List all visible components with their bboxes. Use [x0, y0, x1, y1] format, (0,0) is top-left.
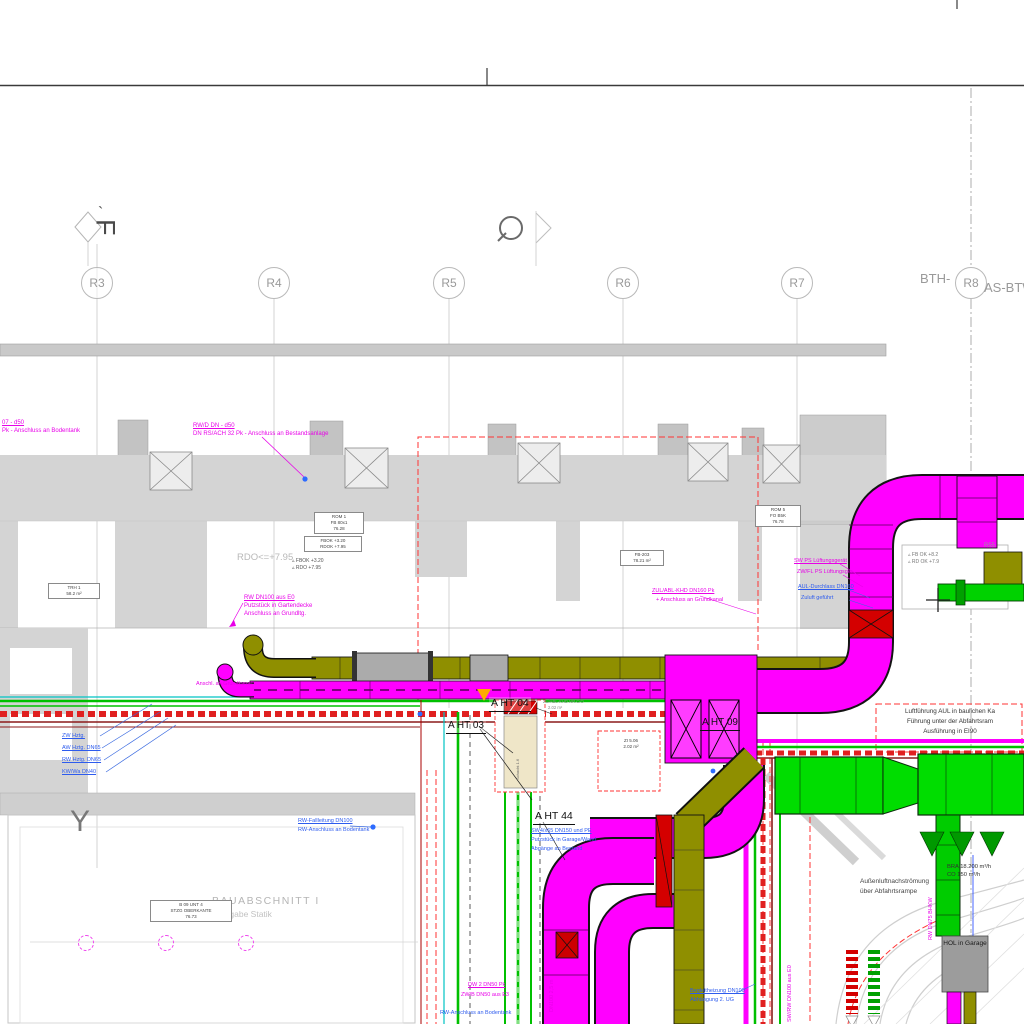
- cad-plan-canvas: R3 R4 R5 R6 R7 R8 BTH- AS-BTW F ` Y A HT…: [0, 0, 1024, 1024]
- mag-note-swps-2: ZW/FL PS Lüftungsger.: [797, 569, 854, 576]
- room-stamp: TRH 158.2 m²: [48, 583, 100, 599]
- blue-note-aul-1: AUL-Durchlass DN160: [798, 584, 854, 591]
- blue-note-aul-2: Zuluft geführt: [801, 595, 833, 602]
- mag-note-corner-2: Pk - Anschluss an Bodentank: [2, 428, 80, 435]
- blue-note-fall-1: RW-Fallleitung DN100: [298, 818, 353, 825]
- mag-note-zul-1: ZUL/ABL-KHD DN160 Pk: [652, 588, 714, 595]
- section-letter-accent: `: [98, 204, 103, 223]
- sheet-frame: [0, 0, 1024, 86]
- grid-bubble-r8: R8: [955, 267, 987, 299]
- mag-note-swrw: SW/RW DN100 aus E0: [787, 965, 794, 1022]
- blue-note-beg-2: Abhängung 2. UG: [690, 997, 734, 1004]
- grid-bubble-r7: R7: [781, 267, 813, 299]
- axis-letter-y: Y: [70, 804, 90, 840]
- level-triangle-icon: ▵: [292, 565, 295, 571]
- level-triangle-icon: ▵: [908, 552, 911, 558]
- mag-note-top-2: DN RS/ACH 32 Pk - Anschluss an Bestandsa…: [193, 431, 328, 438]
- mag-note-dn-vertical: DN100 2,5 m: [549, 980, 556, 1012]
- blue-note-bodentank: RW-Anschluss an Bodentank: [440, 1010, 511, 1017]
- mag-note-swps-1: SW PS Lüftungsgerät: [794, 558, 847, 565]
- shaft-name-vertical: Schacht 1.6: [516, 759, 521, 780]
- mag-note-zul-2: + Anschluss an Grundkanal: [656, 597, 723, 604]
- pipe-label-rw: RW Hztg. DN65: [62, 757, 101, 764]
- room-stamp: ROM 1FB 80x176.28: [314, 512, 364, 534]
- mag-note-mid-2: Putzstück in Gartendecke: [244, 603, 312, 610]
- label-a-ht-04: A HT 04: [489, 697, 531, 712]
- level-fbok-right: ▵ FB OK +8.2: [908, 552, 938, 558]
- blue-note-beg-1: Begleitheizung DN100: [690, 988, 745, 995]
- grid-bubble-r5: R5: [433, 267, 465, 299]
- level-triangle-icon: ▵: [292, 558, 295, 564]
- note-outside-air: Außenluftnachströmung über Abfahrtsrampe: [860, 877, 929, 897]
- blue-note-sw4-1: SW4/x65 DN150 und PE: [531, 828, 592, 835]
- level-rdo-right: ▵ RD OK +7.9: [908, 559, 939, 565]
- mag-note-dn-1: DW 2 DN50 Pk: [468, 982, 505, 989]
- note-duct-routing: Luftführung AUL in baulichen Ka Führung …: [877, 707, 1023, 736]
- note-co: CO 150 m³/h: [947, 872, 980, 879]
- mag-note-mid-1: RW DN100 aus E0: [244, 595, 295, 602]
- level-band: RDO<=+7.95: [237, 552, 293, 563]
- level-r55: R55: [984, 543, 995, 550]
- column-circle: [238, 935, 254, 951]
- level-stamp: FBOK +3.20RDOK +7.95: [304, 536, 362, 552]
- mag-note-dn-2: ZW/B DN50 aus E3: [461, 992, 509, 999]
- section-flag-marker: [536, 213, 551, 243]
- grid-bubble-r4: R4: [258, 267, 290, 299]
- column-circle: [158, 935, 174, 951]
- blue-note-fall-2: RW-Anschluss an Bodentank: [298, 827, 369, 834]
- plan-drawing: [0, 0, 1024, 1024]
- zu-abl-note-1: ZU/ABL-KHD NR.C/O: [543, 699, 584, 704]
- room-stamp: FB-20378.21 m²: [620, 550, 664, 566]
- structural-stamp: B 09 UNT 4STZG OBERKANTE76.73: [150, 900, 232, 922]
- mag-note-grundkanal: Anschl. an Grundkanal: [196, 681, 252, 688]
- blue-note-sw4-2: Putzstück in Garage/Wand: [531, 837, 596, 844]
- grid-bubble-r3: R3: [81, 267, 113, 299]
- label-a-ht-44: A HT 44: [533, 810, 575, 825]
- level-fbok: ▵ FBOK +3.20: [292, 558, 324, 564]
- pipe-label-kw: KW/Wa DN40: [62, 769, 96, 776]
- grid-prefix-bth: BTH-: [920, 271, 950, 287]
- section-markers: [75, 211, 551, 266]
- mag-note-corner-1: 07 - d50: [2, 420, 24, 427]
- pipe-label-aw: AW Hztg. DN65: [62, 745, 101, 752]
- mag-note-bhkw: RW DN75 BHKW: [928, 897, 935, 940]
- room-stamp: ROM 5FO B5K76.78: [755, 505, 801, 527]
- grid-suffix-as-btw: AS-BTW: [984, 280, 1024, 296]
- label-a-ht-03: A HT 03: [446, 720, 486, 734]
- grid-bubble-r6: R6: [607, 267, 639, 299]
- section-letter-f: F: [89, 219, 121, 236]
- column-circle: [78, 935, 94, 951]
- level-rdo: ▵ RDO +7.95: [292, 565, 321, 571]
- pipe-label-zw: ZW Hztg.: [62, 733, 85, 740]
- blue-note-sw4-3: Abgänge an Bestand: [531, 846, 582, 853]
- note-hol: HOL in Garage: [943, 940, 987, 947]
- level-triangle-icon: ▵: [908, 559, 911, 565]
- room-stamp: ZI 5.062.02 m²: [602, 737, 660, 751]
- zu-abl-note-2: 2.02 m²: [548, 705, 562, 710]
- mag-note-mid-3: Anschluss an Grundltg.: [244, 611, 306, 618]
- note-bra: BRA 18.200 m³/h: [947, 864, 991, 871]
- mag-note-top-1: RW/D DN - d50: [193, 423, 235, 430]
- label-a-ht-09: A HT 09: [700, 717, 740, 731]
